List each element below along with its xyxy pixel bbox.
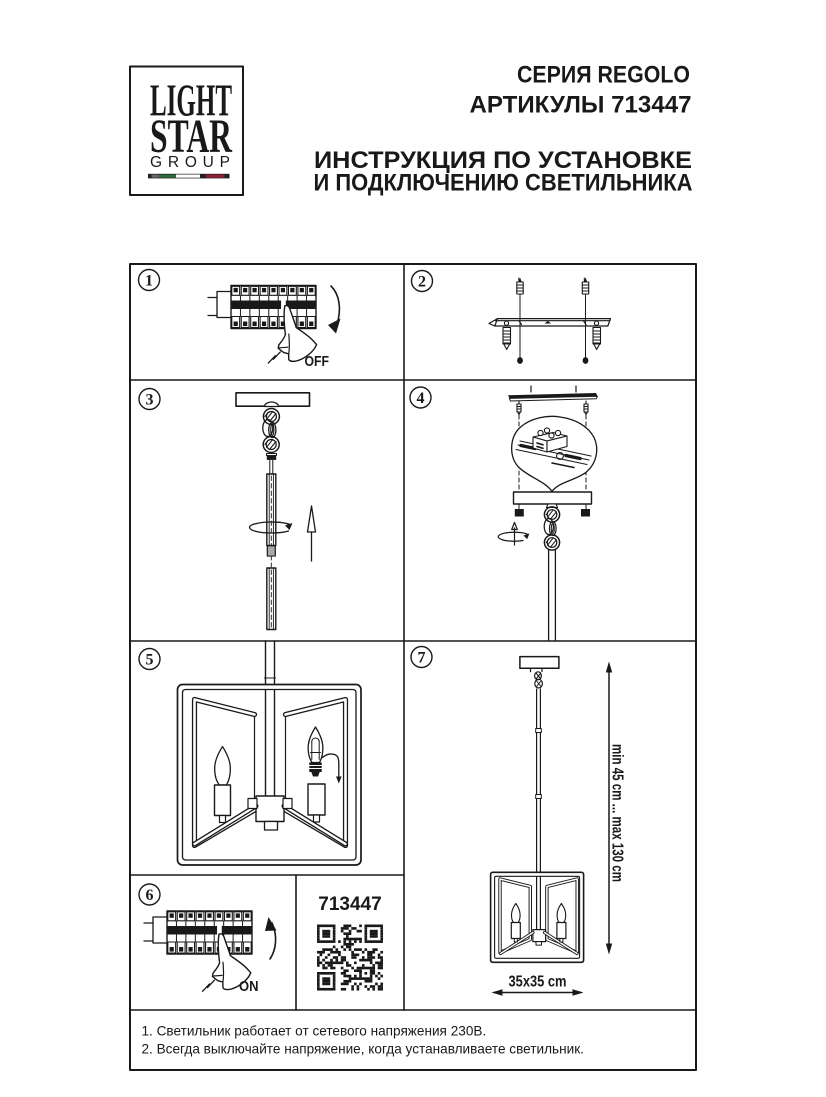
svg-text:3: 3 xyxy=(146,392,154,409)
svg-text:1: 1 xyxy=(145,273,153,290)
svg-text:713447: 713447 xyxy=(318,894,381,915)
svg-text:ON: ON xyxy=(239,979,259,995)
svg-text:СЕРИЯ REGOLO: СЕРИЯ REGOLO xyxy=(517,62,690,89)
svg-text:35x35 cm: 35x35 cm xyxy=(509,974,567,991)
svg-text:5: 5 xyxy=(146,652,154,669)
svg-text:7: 7 xyxy=(418,650,426,667)
svg-text:АРТИКУЛЫ 713447: АРТИКУЛЫ 713447 xyxy=(470,92,692,119)
svg-text:2. Всегда выключайте напряжени: 2. Всегда выключайте напряжение, когда у… xyxy=(142,1042,584,1057)
svg-text:OFF: OFF xyxy=(305,354,330,370)
svg-text:4: 4 xyxy=(417,390,425,407)
svg-text:2: 2 xyxy=(418,274,426,291)
svg-text:6: 6 xyxy=(146,887,154,904)
svg-text:min 45 cm ... max 130 cm: min 45 cm ... max 130 cm xyxy=(609,744,626,882)
svg-text:И ПОДКЛЮЧЕНИЮ СВЕТИЛЬНИКА: И ПОДКЛЮЧЕНИЮ СВЕТИЛЬНИКА xyxy=(314,170,693,197)
svg-text:1. Светильник работает от сете: 1. Светильник работает от сетевого напря… xyxy=(142,1024,487,1039)
